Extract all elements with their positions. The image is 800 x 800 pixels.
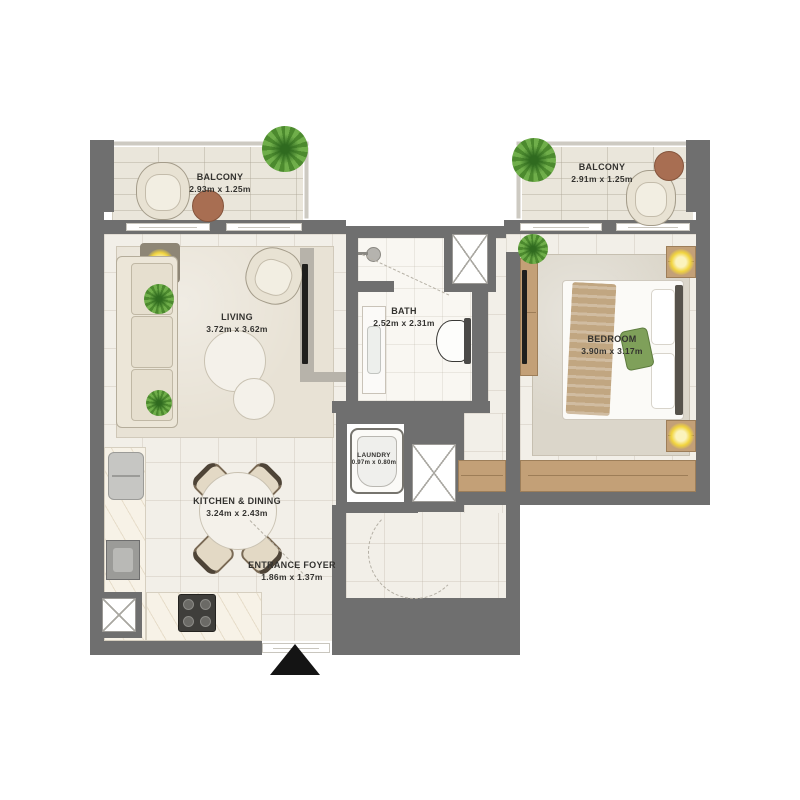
- wall-shower-partial: [346, 281, 394, 292]
- nightstand-lamp-top: [668, 249, 694, 275]
- tv-living: [302, 264, 308, 364]
- room-dims: 2.93m x 1.25m: [150, 184, 290, 195]
- room-label-bath: BATH 2.52m x 2.31m: [346, 306, 462, 329]
- wall-right-lower: [506, 505, 520, 605]
- kitchen-sink: [106, 540, 140, 580]
- service-shaft-laundry: [412, 444, 456, 502]
- tv-bedroom: [522, 270, 527, 364]
- entry-direction-marker: [270, 644, 320, 675]
- wall-right: [696, 200, 710, 505]
- floor-plan: BALCONY 2.93m x 1.25m BALCONY 2.91m x 1.…: [0, 0, 800, 800]
- room-dims: 0.97m x 0.80m: [344, 460, 404, 468]
- room-name: KITCHEN & DINING: [162, 496, 312, 508]
- wall-bath-bottom: [332, 401, 490, 413]
- wall-stub-top-right: [686, 140, 710, 212]
- toilet-tank: [464, 318, 471, 364]
- dashed-arc-corridor: [368, 505, 462, 599]
- room-dims: 1.86m x 1.37m: [222, 572, 362, 583]
- wall-bottom-left: [90, 641, 262, 655]
- fridge: [108, 452, 144, 500]
- stove: [178, 594, 216, 632]
- side-table-balcony-left: [192, 190, 224, 222]
- window-bedroom-1: [520, 223, 602, 231]
- plant-sofa: [144, 284, 174, 314]
- room-label-balcony-left: BALCONY 2.93m x 1.25m: [150, 172, 290, 195]
- wall-stub-top-left: [90, 140, 114, 212]
- plant-sofa-2: [146, 390, 172, 416]
- wall-foyer-right: [332, 505, 346, 605]
- wall-left: [90, 205, 104, 655]
- room-label-kitchen-dining: KITCHEN & DINING 3.24m x 2.43m: [162, 496, 312, 519]
- room-name: LIVING: [172, 312, 302, 324]
- wall-bottom-center: [332, 598, 520, 655]
- window-living-2: [226, 223, 302, 231]
- service-shaft-kitchen: [102, 598, 136, 632]
- room-label-living: LIVING 3.72m x 3.62m: [172, 312, 302, 335]
- room-dims: 2.52m x 2.31m: [346, 318, 462, 329]
- wall-bottom-right: [458, 491, 710, 505]
- coffee-table-small: [233, 378, 275, 420]
- room-label-balcony-right: BALCONY 2.91m x 1.25m: [532, 162, 672, 185]
- wall-bedroom-left: [506, 252, 520, 491]
- room-name: BATH: [346, 306, 462, 318]
- room-dims: 2.91m x 1.25m: [532, 174, 672, 185]
- bed-pillow-2: [651, 353, 675, 409]
- wardrobe-hall: [458, 460, 506, 492]
- room-name: ENTRANCE FOYER: [222, 560, 362, 572]
- window-living-1: [126, 223, 210, 231]
- room-label-laundry: LAUNDRY 0.97m x 0.80m: [344, 452, 404, 468]
- room-name: BEDROOM: [548, 334, 676, 346]
- wall-laundry-top: [336, 413, 464, 424]
- room-label-bedroom: BEDROOM 3.90m x 3.17m: [548, 334, 676, 357]
- room-name: BALCONY: [150, 172, 290, 184]
- room-dims: 3.90m x 3.17m: [548, 346, 676, 357]
- room-name: BALCONY: [532, 162, 672, 174]
- room-dims: 3.72m x 3.62m: [172, 324, 302, 335]
- wall-bath-right: [472, 291, 488, 401]
- service-shaft-bath: [452, 234, 488, 284]
- nightstand-lamp-bottom: [668, 423, 694, 449]
- room-dims: 3.24m x 2.43m: [162, 508, 312, 519]
- plant-balcony-left: [262, 126, 308, 172]
- plant-bedroom: [518, 234, 548, 264]
- wardrobe-bedroom: [520, 460, 696, 492]
- room-name: LAUNDRY: [344, 452, 404, 460]
- headboard: [675, 285, 683, 415]
- living-partition-foot: [300, 372, 346, 382]
- room-label-entrance-foyer: ENTRANCE FOYER 1.86m x 1.37m: [222, 560, 362, 583]
